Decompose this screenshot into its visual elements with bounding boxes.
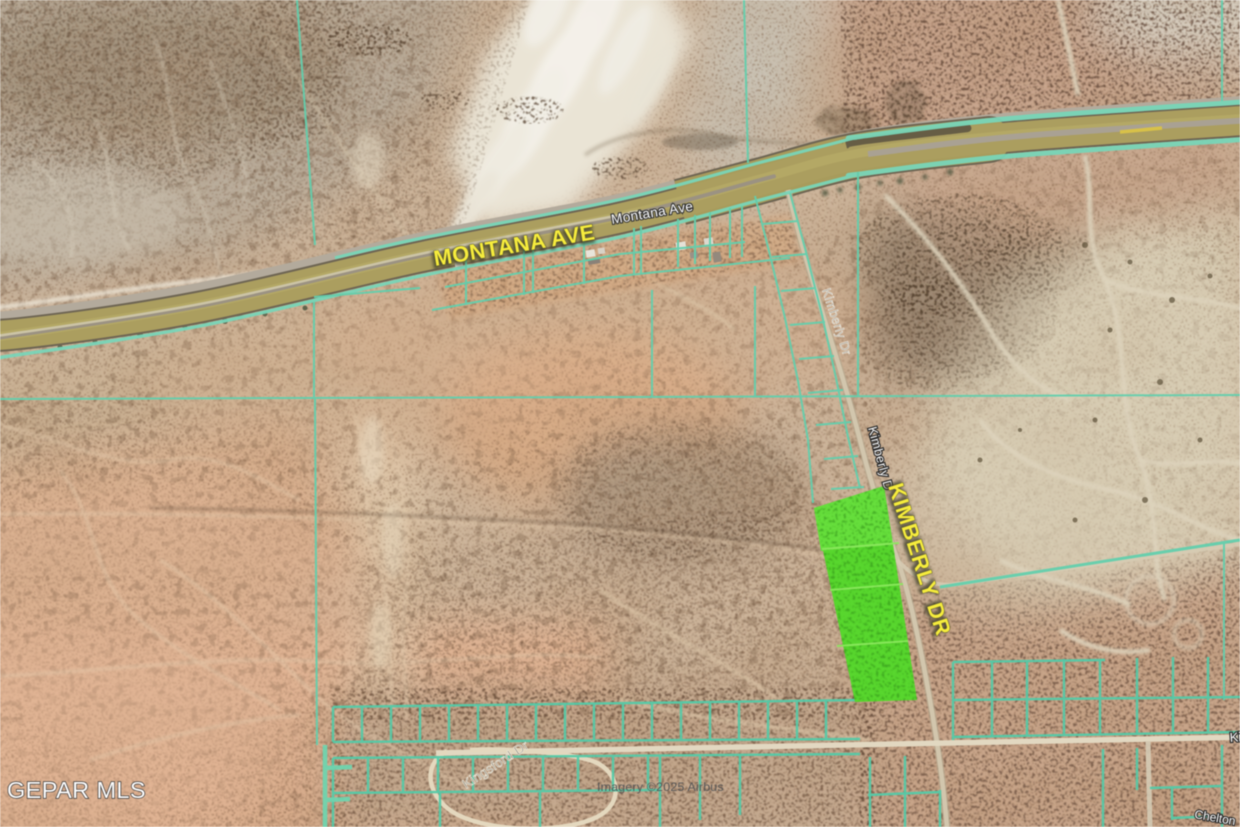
svg-text:Ki: Ki [1229, 729, 1240, 745]
svg-text:GEPAR MLS: GEPAR MLS [7, 777, 146, 803]
svg-text:Imagery ©2025 Airbus: Imagery ©2025 Airbus [597, 780, 724, 794]
